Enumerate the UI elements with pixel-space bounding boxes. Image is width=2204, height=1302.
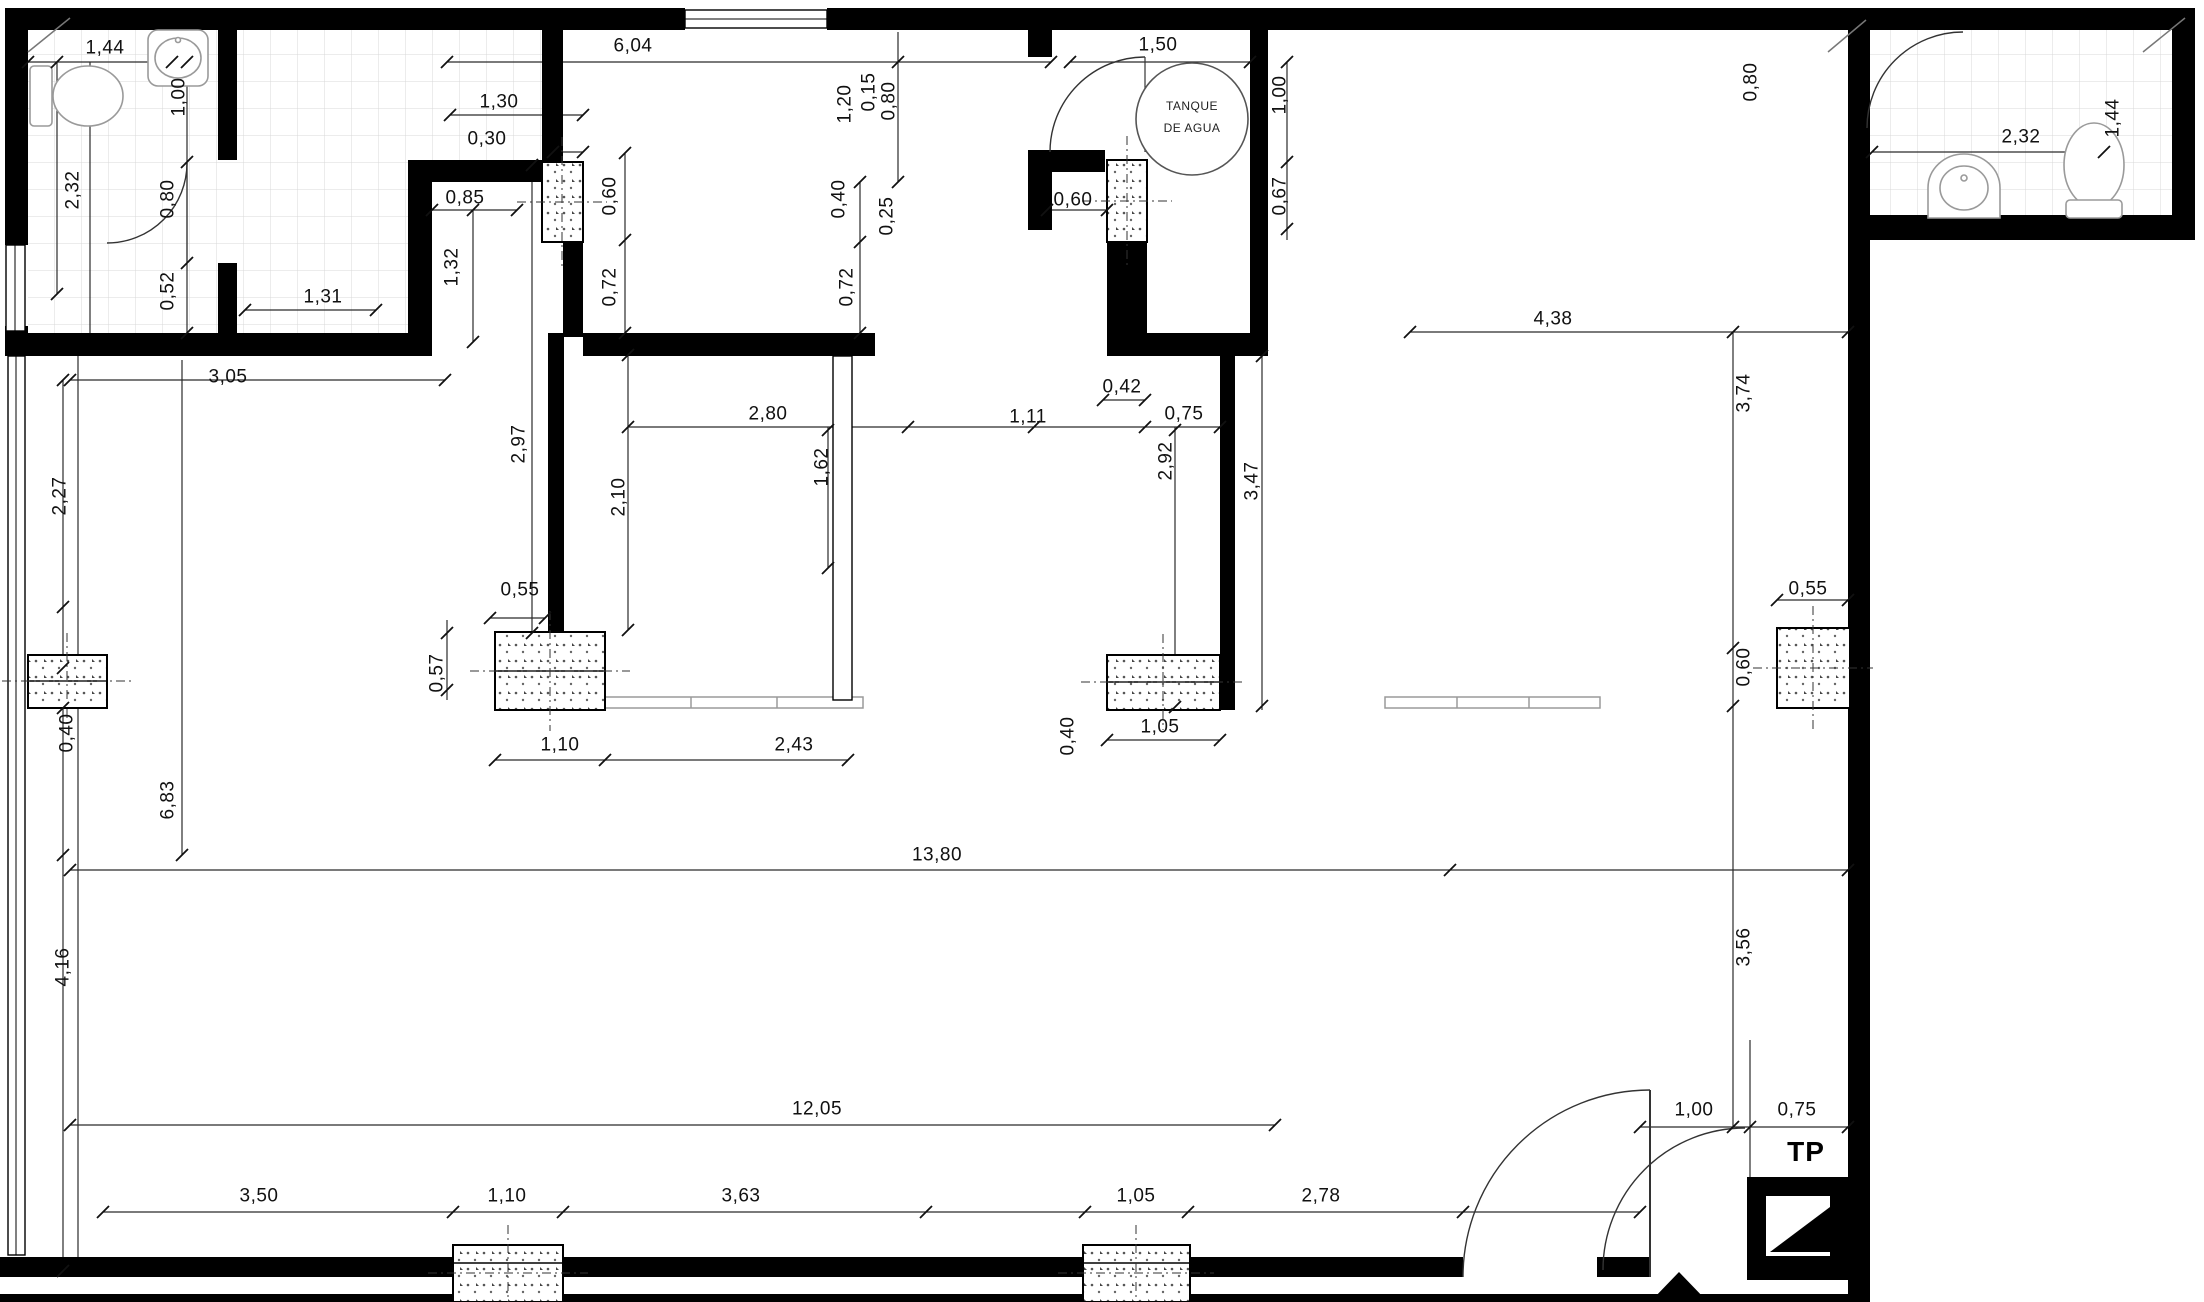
dimension-label: 0,15 xyxy=(860,73,879,112)
dimension-label: 4,38 xyxy=(1534,310,1573,329)
dimension-label: 0,42 xyxy=(1103,378,1142,397)
dimension-label: 3,50 xyxy=(240,1187,279,1206)
dimension-label: 0,75 xyxy=(1165,405,1204,424)
dimension-label: 4,16 xyxy=(54,948,73,987)
dimension-label: 0,40 xyxy=(1059,717,1078,756)
dimension-label: 2,78 xyxy=(1302,1187,1341,1206)
dimension-label: 1,44 xyxy=(86,39,125,58)
dimension-label: 6,04 xyxy=(614,37,653,56)
dimension-label: 0,67 xyxy=(1271,177,1290,216)
dimension-label: 3,05 xyxy=(209,368,248,387)
dimension-label: 1,44 xyxy=(2104,99,2123,138)
dimension-label: 1,32 xyxy=(443,248,462,287)
dimension-label: 1,00 xyxy=(1675,1101,1714,1120)
dimension-label: 2,97 xyxy=(510,425,529,464)
dimension-label: 0,40 xyxy=(830,180,849,219)
dimension-label: 0,85 xyxy=(446,189,485,208)
dimension-label: 3,47 xyxy=(1243,462,1262,501)
dimension-label: 2,92 xyxy=(1157,442,1176,481)
dimension-label: 0,75 xyxy=(1778,1101,1817,1120)
dimension-label: 1,10 xyxy=(488,1187,527,1206)
tank-label-line1: TANQUE xyxy=(1166,99,1218,113)
tank-label-line2: DE AGUA xyxy=(1164,121,1221,135)
dimension-label: 0,57 xyxy=(428,654,447,693)
dimension-label: 1,11 xyxy=(1009,408,1047,427)
dimension-label: 2,27 xyxy=(51,477,70,516)
dimension-label: 2,80 xyxy=(749,405,788,424)
dimension-label: 3,56 xyxy=(1735,928,1754,967)
dimension-label: 0,72 xyxy=(838,268,857,307)
dimension-label: 12,05 xyxy=(792,1100,842,1119)
dimension-label: 1,62 xyxy=(813,448,832,487)
dimension-label: 1,05 xyxy=(1141,718,1180,737)
dimension-label: 0,55 xyxy=(1789,580,1828,599)
dimension-label: 1,50 xyxy=(1139,36,1178,55)
dimension-label: 2,32 xyxy=(64,171,83,210)
dimension-label: 1,00 xyxy=(170,78,189,117)
dimension-label: 1,05 xyxy=(1117,1187,1156,1206)
dimension-label: 0,52 xyxy=(159,272,178,311)
dimension-label: 1,10 xyxy=(541,736,580,755)
tp-shaft-label: TP xyxy=(1787,1136,1825,1168)
dimension-label: 1,30 xyxy=(480,93,519,112)
dimension-label: 0,60 xyxy=(1054,191,1093,210)
dimension-label: 13,80 xyxy=(912,846,962,865)
dimension-label: 0,25 xyxy=(878,197,897,236)
dimension-labels-layer: TANQUE DE AGUA TP 1,441,002,320,800,521,… xyxy=(0,0,2204,1302)
dimension-label: 6,83 xyxy=(159,781,178,820)
dimension-label: 2,43 xyxy=(775,736,814,755)
dimension-label: 0,80 xyxy=(159,180,178,219)
dimension-label: 3,63 xyxy=(722,1187,761,1206)
dimension-label: 1,00 xyxy=(1271,76,1290,115)
dimension-label: 0,55 xyxy=(501,581,540,600)
dimension-label: 0,60 xyxy=(601,177,620,216)
dimension-label: 0,40 xyxy=(58,714,77,753)
dimension-label: 1,20 xyxy=(836,85,855,124)
dimension-label: 2,10 xyxy=(610,478,629,517)
dimension-label: 0,60 xyxy=(1735,648,1754,687)
dimension-label: 0,72 xyxy=(601,268,620,307)
dimension-label: 3,74 xyxy=(1735,374,1754,413)
floor-plan: TANQUE DE AGUA TP 1,441,002,320,800,521,… xyxy=(0,0,2204,1302)
dimension-label: 1,31 xyxy=(304,288,343,307)
dimension-label: 2,32 xyxy=(2002,128,2041,147)
dimension-label: 0,30 xyxy=(468,130,507,149)
dimension-label: 0,80 xyxy=(880,82,899,121)
dimension-label: 0,80 xyxy=(1742,63,1761,102)
